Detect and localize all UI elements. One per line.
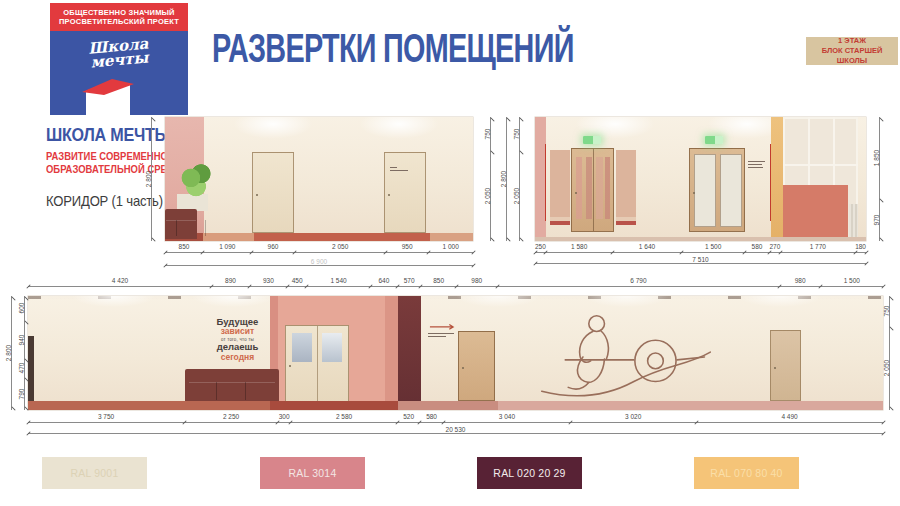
dim-segment: 1 770	[781, 243, 856, 253]
dim-segment: 750	[509, 117, 520, 150]
wayfinding-arrow-sign	[428, 323, 457, 341]
swatch-ral-020-20-29: RAL 020 20 29	[477, 457, 582, 489]
dim-segment: 1 500	[682, 243, 745, 253]
dim-label: 6 790	[630, 278, 646, 285]
dim-vertical-e2-right: 1 850 970	[869, 117, 880, 241]
dim-segment: 950	[386, 243, 428, 253]
door-window	[322, 333, 342, 362]
badge-line1: 1 ЭТАЖ	[838, 36, 866, 46]
red-accent-line	[545, 144, 546, 221]
dim-segment: 600	[14, 296, 25, 320]
door-split	[317, 326, 318, 403]
dim-segment: 1 640	[612, 243, 681, 253]
dim-label: 4 420	[112, 278, 128, 285]
dim-segment: 470	[14, 359, 25, 378]
floor-badge: 1 ЭТАЖ БЛОК СТАРШЕЙ ШКОЛЫ	[806, 37, 898, 65]
dim-label: 950	[402, 244, 413, 251]
dim-segment: 520	[398, 413, 420, 423]
dim-vertical-e1-right: 750 2 050	[480, 117, 491, 241]
dim-label: 4 490	[781, 414, 797, 421]
school-logo: Школа мечты	[50, 31, 188, 115]
project-banner: ОБЩЕСТВЕННО ЗНАЧИМЫЙ ПРОСВЕТИТЕЛЬСКИЙ ПР…	[50, 3, 188, 31]
maroon-band	[398, 296, 421, 410]
dim-segment: 2 050	[480, 150, 491, 241]
dim-segment: 300	[278, 413, 291, 423]
dim-label: 2 800	[146, 171, 153, 187]
dim-label: 1 500	[844, 278, 860, 285]
dim-row-e2-bottom: 250 1 580 1 640 1 500 580 270 1 770 180	[535, 243, 866, 253]
dim-label: 2 800	[501, 171, 508, 187]
dim-label: 580	[426, 414, 437, 421]
dim-segment: 2 050	[294, 243, 386, 253]
dim-vertical-e3-left: 600 940 470 790	[14, 296, 25, 410]
dim-segment: 2 250	[184, 413, 278, 423]
dim-segment: 2 800	[496, 117, 507, 241]
dim-label: 1 090	[219, 244, 235, 251]
dim-segment: 890	[212, 276, 249, 287]
glass-partition	[783, 117, 858, 241]
dim-vertical-e3-total: 2 800	[1, 296, 12, 410]
dim-segment: 970	[869, 198, 880, 241]
right-door	[770, 330, 801, 401]
dim-segment: 570	[397, 276, 421, 287]
mullion	[783, 164, 858, 166]
dim-row-e1-bottom: 850 1 090 960 2 050 950 1 000	[165, 243, 473, 253]
dim-label: 1 580	[571, 244, 587, 251]
dim-segment: 3 020	[570, 413, 696, 423]
dim-label: 300	[279, 414, 290, 421]
dim-segment: 960	[252, 243, 295, 253]
dim-label: 1 500	[705, 244, 721, 251]
double-door-2	[689, 148, 745, 232]
elevation-2-render	[535, 117, 866, 241]
wall-signs	[748, 159, 765, 168]
dim-vertical-e2-left: 750 2 050	[509, 117, 520, 241]
banner-line2: ПРОСВЕТИТЕЛЬСКИЙ ПРОЕКТ	[59, 17, 179, 26]
dim-label: 3 040	[499, 414, 515, 421]
wood-door	[458, 331, 495, 401]
dim-row-e3-top: 4 420 890 930 450 1 540 640 570 850 980 …	[28, 276, 883, 287]
dim-segment: 980	[456, 276, 497, 287]
dim-label: 850	[179, 244, 190, 251]
double-door-glazed	[285, 325, 350, 404]
dim-segment: 6 790	[497, 276, 780, 287]
dim-total-e3: 20 530	[28, 433, 883, 434]
badge-line2: БЛОК СТАРШЕЙ ШКОЛЫ	[806, 46, 898, 66]
pink-edge-strip	[535, 117, 546, 241]
swatch-ral-070-80-40: RAL 070 80 40	[694, 457, 799, 489]
dim-label: 470	[19, 363, 26, 374]
dim-segment: 450	[288, 276, 307, 287]
elevation-3-render: Будущее зависит от того, что ты делаешь …	[28, 296, 883, 410]
dim-segment: 930	[249, 276, 288, 287]
dim-label: 750	[884, 306, 891, 317]
ceiling-glows	[28, 296, 883, 326]
dim-label: 750	[514, 128, 521, 139]
door-glass-left	[694, 154, 716, 227]
dim-label: 600	[19, 303, 26, 314]
dim-label: 930	[263, 278, 274, 285]
swatch-ral-9001: RAL 9001	[42, 457, 147, 489]
door-posters	[576, 157, 610, 219]
baseboard	[535, 237, 866, 241]
swatch-label: RAL 9001	[71, 467, 119, 479]
dim-vertical-e3-right: 750 2 050	[879, 296, 890, 410]
banner-line1: ОБЩЕСТВЕННО ЗНАЧИМЫЙ	[63, 8, 174, 17]
dim-label: 850	[433, 278, 444, 285]
exit-sign-icon	[583, 136, 601, 144]
dim-label: 180	[855, 244, 866, 251]
dim-segment: 1 540	[306, 276, 370, 287]
dim-segment: 940	[14, 320, 25, 358]
dim-vertical-e1-left: 2 800	[141, 117, 152, 241]
dim-label: 970	[874, 214, 881, 225]
dim-label: 960	[268, 244, 279, 251]
swatch-ral-3014: RAL 3014	[260, 457, 365, 489]
weightlifter-line-art	[532, 305, 720, 403]
dim-label: 980	[471, 278, 482, 285]
swatch-label: RAL 070 80 40	[710, 467, 782, 479]
ceiling-light-glow	[233, 117, 313, 139]
dim-segment: 2 050	[879, 327, 890, 410]
dim-segment: 1 090	[203, 243, 252, 253]
dim-label: 1 540	[330, 278, 346, 285]
dim-row-e3-bottom: 3 750 2 250 300 2 580 520 580 3 040 3 02…	[28, 413, 883, 423]
double-door-1	[571, 148, 614, 232]
arrow-right-icon	[428, 323, 457, 331]
dim-label: 270	[769, 244, 780, 251]
dim-segment: 2 800	[1, 296, 12, 410]
dim-label: 580	[752, 244, 763, 251]
dim-label: 450	[292, 278, 303, 285]
reception-front-panel	[783, 185, 848, 241]
left-door-frame-sliver	[28, 336, 34, 402]
dim-label: 1 640	[639, 244, 655, 251]
dim-vertical-e2-total: 2 800	[496, 117, 507, 241]
dim-label: 1 850	[874, 150, 881, 166]
sign-text-lines	[428, 333, 457, 337]
dim-segment: 750	[480, 117, 491, 150]
dim-label: 3 750	[98, 414, 114, 421]
dim-segment: 3 040	[444, 413, 571, 423]
orange-strip	[771, 117, 783, 241]
dim-label: 980	[795, 278, 806, 285]
dim-total-e1: 6 900	[165, 265, 473, 266]
exit-sign-icon	[705, 136, 723, 144]
dim-label: 2 050	[332, 244, 348, 251]
dim-label: 520	[403, 414, 414, 421]
dim-label: 2 800	[6, 345, 13, 361]
bulletin-board-left	[550, 150, 570, 224]
dim-label: 750	[485, 128, 492, 139]
dim-segment: 750	[879, 296, 890, 327]
dim-label: 570	[404, 278, 415, 285]
dim-segment: 1 000	[428, 243, 473, 253]
elevation-1-render	[165, 117, 473, 241]
dim-label: 940	[19, 334, 26, 345]
dim-segment: 640	[371, 276, 398, 287]
page-title: РАЗВЕРТКИ ПОМЕЩЕНИЙ	[212, 26, 574, 71]
dim-label: 2 050	[485, 187, 492, 203]
door-glass-right	[720, 154, 742, 227]
dim-label: 790	[19, 388, 26, 399]
dim-segment: 850	[421, 276, 456, 287]
dim-segment: 2 580	[290, 413, 397, 423]
dim-segment: 4 420	[28, 276, 212, 287]
baseboard	[28, 401, 883, 410]
dim-label: 2 250	[223, 414, 239, 421]
swatch-label: RAL 3014	[289, 467, 337, 479]
plant	[179, 159, 213, 201]
dim-segment: 4 490	[696, 413, 883, 423]
subtitle-line2: ОБРАЗОВАТЕЛЬНОЙ СРЕДЫ	[46, 163, 183, 176]
dim-segment: 580	[745, 243, 769, 253]
dim-segment: 790	[14, 378, 25, 410]
logo-script-text: Школа мечты	[49, 33, 189, 73]
baseboard	[165, 233, 473, 241]
dim-label: 2 580	[336, 414, 352, 421]
door-1	[252, 152, 295, 233]
dim-segment: 180	[855, 243, 866, 253]
sofa	[165, 209, 197, 239]
bulletin-board-right	[616, 150, 636, 224]
door-window	[292, 333, 312, 362]
dim-segment: 2 050	[509, 150, 520, 241]
dim-segment: 980	[780, 276, 821, 287]
door-2	[384, 152, 427, 233]
dim-segment: 1 580	[546, 243, 613, 253]
ceiling-light-glow	[359, 117, 439, 139]
dim-segment: 3 750	[28, 413, 184, 423]
dim-segment: 1 850	[869, 117, 880, 198]
dim-label: 250	[535, 244, 546, 251]
subtitle-line1: РАЗВИТИЕ СОВРЕМЕННОЙ	[46, 150, 183, 163]
swatch-label: RAL 020 20 29	[493, 467, 565, 479]
house-icon	[74, 75, 142, 115]
dim-total-e2: 7 510	[535, 263, 866, 264]
dim-label: 640	[378, 278, 389, 285]
dim-segment: 580	[419, 413, 443, 423]
dim-segment: 1 500	[821, 276, 883, 287]
door-nameplate	[390, 165, 408, 171]
dim-label: 890	[225, 278, 236, 285]
dim-label: 2 050	[514, 187, 521, 203]
dim-label: 1 770	[810, 244, 826, 251]
brand-subtitle: РАЗВИТИЕ СОВРЕМЕННОЙ ОБРАЗОВАТЕЛЬНОЙ СРЕ…	[46, 150, 183, 175]
dim-segment: 850	[165, 243, 203, 253]
dim-label: 1 000	[443, 244, 459, 251]
radiator	[849, 204, 859, 241]
dim-segment: 2 800	[141, 117, 152, 241]
dim-label: 3 020	[625, 414, 641, 421]
sofa	[185, 369, 278, 403]
dim-label: 2 050	[884, 360, 891, 376]
